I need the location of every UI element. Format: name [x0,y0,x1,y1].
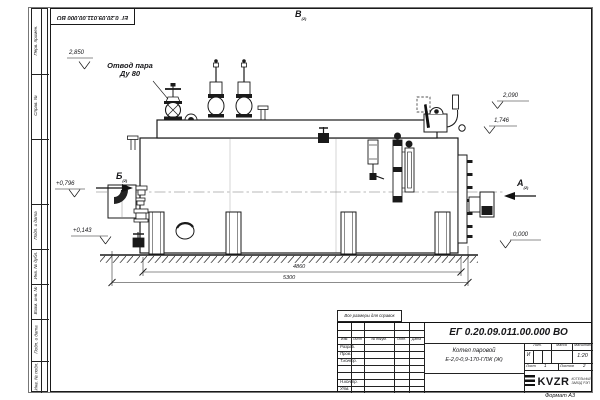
strip-cell-perv-primen: Перв. примен. [31,8,40,73]
logo-bars-icon [525,375,535,388]
tb-header-list: Лист [351,338,364,342]
strip-cell-podp-data-2: Подп. и дата [31,318,40,360]
view-label-v: В(2) [295,10,306,21]
logo-text: KVZR [537,376,569,388]
tb-sheets-value: 2 [583,364,586,369]
tb-sheet-label: Лист [526,364,536,368]
strip-cell-podp-data-1: Подп. и дата [31,203,40,248]
tb-header-data: Дата [409,338,424,342]
elevation-2090: 2,090 [503,93,518,100]
elevation-1746: 1,746 [494,118,509,125]
strip-cell-sprav: Справ. № [31,73,40,138]
reference-note-box: Все размеры для справок [337,310,402,322]
reference-note: Все размеры для справок [344,314,394,319]
tb-row-tkontr: Т.контр. [340,359,357,364]
elevation-0796: +0,796 [56,181,75,188]
elevation-2850: 2,850 [69,50,84,57]
company-logo: KVZR КОТЕЛЬНЫЙ ЗАВОД РЭП [524,370,593,393]
elevation-0143: +0,143 [73,228,92,235]
tb-header-doc: № докум. [364,338,394,342]
tb-row-nkontr: Н.контр. [340,380,358,385]
tb-scale-value: 1:20 [572,353,593,359]
steam-outlet-label: Отвод пара Ду 80 [101,62,159,79]
tb-header-podp: Подп. [394,338,409,342]
tb-row-razrab: Разраб. [340,345,355,350]
tb-header-izm: Изм. [338,338,351,342]
strip-cell-vzam-inv: Взам. инв. № [31,283,40,318]
tb-lit-value: И [524,353,533,359]
view-label-a: А(2) [517,179,528,190]
tb-product-name: Котел паровой Е-2,0-0,9-170-ГЛЖ (Ж) [424,348,524,363]
elevation-0000: 0,000 [513,232,528,239]
tb-lit-label: Лит. [524,344,551,348]
format-label: Формат А3 [528,393,592,399]
view-v-sheet-ref: (2) [302,16,307,21]
top-stamp-number: ЕГ 0.20.09.011.00.000 ВО [57,14,128,20]
tb-doc-number: ЕГ 0.20.09.011.00.000 ВО [424,327,593,338]
dimension-4860: 4860 [293,264,305,270]
top-stamp-box: ЕГ 0.20.09.011.00.000 ВО [50,8,135,25]
dimension-5300: 5300 [283,275,295,281]
company-name: КОТЕЛЬНЫЙ ЗАВОД РЭП [571,378,591,386]
view-label-b: Б(2) [116,172,127,183]
tb-scale-label: Масштаб [572,344,593,348]
tb-row-utv: Утв. [340,387,350,392]
view-b-sheet-ref: (2) [122,178,127,183]
tb-sheet-value: 1 [544,364,547,369]
tb-row-prov: Пров. [340,352,351,357]
tb-mass-label: Масса [551,344,572,348]
tb-sheets-label: Листов [560,364,574,368]
strip-cell-inv-dubl: Инв. № дубл. [31,248,40,283]
drawing-sheet: ЕГ 0.20.09.011.00.000 ВО Перв. примен. С… [0,0,600,400]
strip-cell-inv-podl: Инв. № подл. [31,360,40,392]
strip-divider [41,9,42,393]
title-block: Изм. Лист № докум. Подп. Дата Разраб. Пр… [337,322,592,392]
view-a-sheet-ref: (2) [524,185,529,190]
